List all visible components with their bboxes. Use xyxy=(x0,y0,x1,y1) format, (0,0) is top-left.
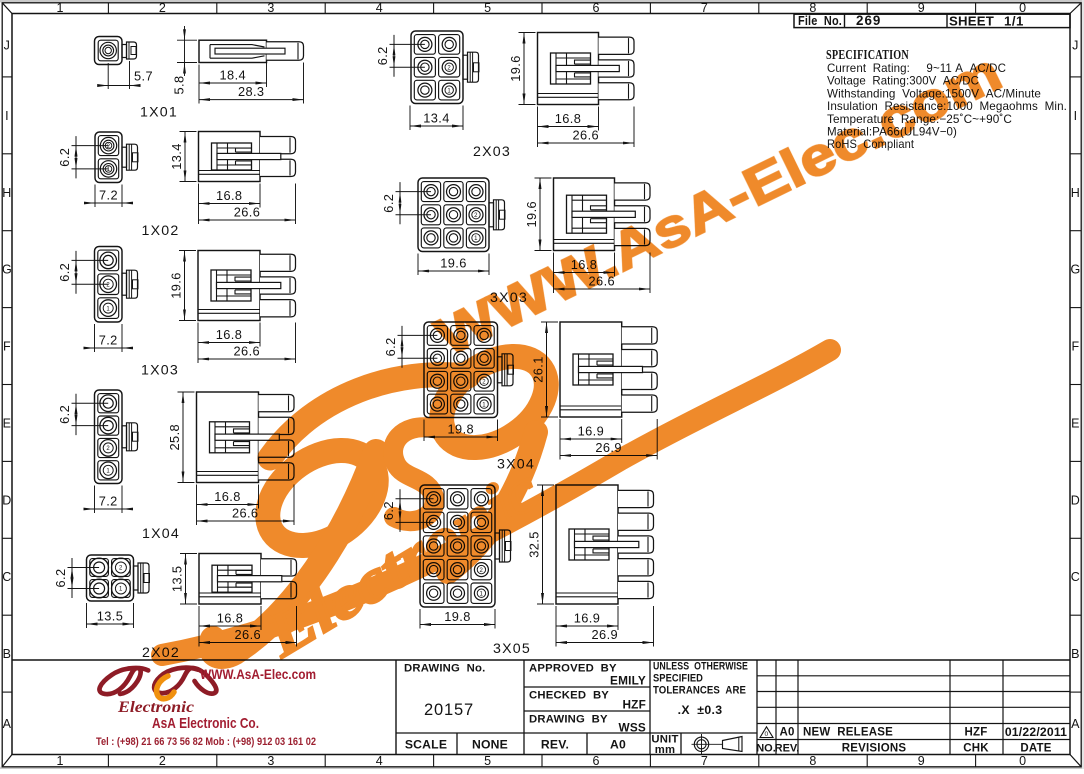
svg-text:SPECIFICATION: SPECIFICATION xyxy=(826,47,909,62)
svg-text:8: 8 xyxy=(809,754,816,768)
svg-text:A0: A0 xyxy=(779,727,794,739)
svg-text:13.5: 13.5 xyxy=(97,609,124,624)
svg-text:269: 269 xyxy=(856,13,881,28)
svg-text:File No.: File No. xyxy=(798,13,842,28)
svg-text:0: 0 xyxy=(764,731,768,738)
svg-text:C: C xyxy=(1071,570,1080,584)
svg-text:Tel : (+98) 21 66 73 56 82 Mob: Tel : (+98) 21 66 73 56 82 Mob : (+98) 9… xyxy=(96,736,316,748)
svg-text:TOLERANCES ARE: TOLERANCES ARE xyxy=(653,685,746,697)
svg-text:6.2: 6.2 xyxy=(381,194,396,213)
svg-text:6.2: 6.2 xyxy=(383,337,398,356)
svg-text:2: 2 xyxy=(159,754,166,768)
svg-text:J: J xyxy=(1072,39,1079,53)
svg-text:G: G xyxy=(1070,263,1080,277)
svg-text:1: 1 xyxy=(474,236,478,242)
svg-text:G: G xyxy=(2,263,12,277)
svg-text:9: 9 xyxy=(918,754,925,768)
svg-text:C: C xyxy=(2,570,11,584)
svg-text:NEW RELEASE: NEW RELEASE xyxy=(803,727,893,739)
svg-text:26.6: 26.6 xyxy=(234,344,261,359)
svg-text:6: 6 xyxy=(593,754,600,768)
svg-text:7: 7 xyxy=(701,754,708,768)
svg-text:1: 1 xyxy=(119,587,123,593)
svg-text:F: F xyxy=(1071,340,1079,354)
svg-text:1X02: 1X02 xyxy=(142,223,180,239)
svg-text:1X01: 1X01 xyxy=(140,105,178,121)
svg-text:19.8: 19.8 xyxy=(444,609,471,624)
svg-text:HZF: HZF xyxy=(965,727,988,739)
svg-text:EMILY: EMILY xyxy=(610,674,646,688)
svg-text:7.2: 7.2 xyxy=(99,188,118,203)
svg-text:2: 2 xyxy=(482,379,486,385)
svg-text:5.7: 5.7 xyxy=(134,69,153,84)
svg-text:7: 7 xyxy=(701,1,708,15)
svg-text:6.2: 6.2 xyxy=(53,569,68,588)
svg-text:A: A xyxy=(3,717,12,731)
svg-text:2: 2 xyxy=(106,282,110,288)
svg-text:E: E xyxy=(3,417,12,431)
svg-text:DATE: DATE xyxy=(1020,743,1051,755)
svg-text:A0: A0 xyxy=(610,738,626,752)
svg-text:25.8: 25.8 xyxy=(167,424,182,451)
svg-text:1: 1 xyxy=(106,469,110,475)
svg-text:H: H xyxy=(2,186,11,200)
svg-text:26.6: 26.6 xyxy=(232,506,259,521)
svg-text:20157: 20157 xyxy=(424,701,474,719)
svg-text:4: 4 xyxy=(376,1,383,15)
svg-text:REVISIONS: REVISIONS xyxy=(842,743,907,755)
svg-text:5.8: 5.8 xyxy=(172,76,187,95)
svg-text:3: 3 xyxy=(267,1,274,15)
svg-text:6.2: 6.2 xyxy=(57,405,72,424)
svg-text:SHEET: SHEET xyxy=(949,13,994,28)
svg-text:13.5: 13.5 xyxy=(170,566,185,593)
svg-text:D: D xyxy=(2,493,11,507)
svg-text:19.6: 19.6 xyxy=(169,272,184,299)
svg-text:E: E xyxy=(1071,417,1080,431)
svg-text:2: 2 xyxy=(159,1,166,15)
svg-text:1: 1 xyxy=(57,1,64,15)
svg-text:0: 0 xyxy=(1019,754,1026,768)
svg-text:2: 2 xyxy=(119,566,123,572)
svg-text:NONE: NONE xyxy=(472,738,508,752)
svg-text:Electronic: Electronic xyxy=(117,698,194,716)
svg-text:I: I xyxy=(5,109,9,123)
svg-text:19.6: 19.6 xyxy=(524,201,539,228)
svg-text:16.8: 16.8 xyxy=(217,611,244,626)
svg-text:28.3: 28.3 xyxy=(238,84,265,99)
svg-text:26.6: 26.6 xyxy=(573,128,600,143)
svg-text:WSS: WSS xyxy=(619,721,646,735)
svg-text:5: 5 xyxy=(484,754,491,768)
svg-text:1: 1 xyxy=(57,754,64,768)
svg-text:HZF: HZF xyxy=(622,698,646,712)
svg-text:F: F xyxy=(3,340,11,354)
svg-text:1: 1 xyxy=(106,306,110,312)
svg-text:1X03: 1X03 xyxy=(141,363,179,379)
svg-text:16.8: 16.8 xyxy=(216,327,243,342)
svg-text:7.2: 7.2 xyxy=(99,494,118,509)
svg-text:1: 1 xyxy=(482,402,486,408)
svg-text:CHK: CHK xyxy=(963,743,989,755)
svg-text:SPECIFIED: SPECIFIED xyxy=(653,673,703,685)
svg-text:16.9: 16.9 xyxy=(578,424,605,439)
svg-text:16.8: 16.8 xyxy=(555,111,582,126)
svg-text:9: 9 xyxy=(918,1,925,15)
svg-text:16.8: 16.8 xyxy=(214,489,241,504)
svg-text:18.4: 18.4 xyxy=(220,68,247,83)
svg-text:2: 2 xyxy=(106,446,110,452)
svg-text:2: 2 xyxy=(480,568,484,574)
svg-text:16.9: 16.9 xyxy=(574,611,601,626)
svg-text:2: 2 xyxy=(107,144,111,150)
svg-text:19.6: 19.6 xyxy=(440,256,467,271)
svg-text:4: 4 xyxy=(376,754,383,768)
svg-text:7.2: 7.2 xyxy=(99,333,118,348)
svg-text:NO.: NO. xyxy=(756,743,776,755)
svg-text:1/1: 1/1 xyxy=(1004,13,1024,28)
svg-text:.X ±0.3: .X ±0.3 xyxy=(678,703,723,717)
svg-text:I: I xyxy=(1074,109,1078,123)
svg-text:32.5: 32.5 xyxy=(527,531,542,558)
svg-text:B: B xyxy=(3,647,12,661)
svg-text:6.2: 6.2 xyxy=(57,263,72,282)
svg-text:APPROVED BY: APPROVED BY xyxy=(529,663,617,675)
svg-text:REV.: REV. xyxy=(541,738,569,752)
svg-text:19.6: 19.6 xyxy=(508,55,523,82)
svg-text:AsA Electronic Co.: AsA Electronic Co. xyxy=(152,716,259,732)
svg-text:6: 6 xyxy=(593,1,600,15)
svg-text:6.2: 6.2 xyxy=(375,46,390,65)
svg-text:UNLESS OTHERWISE: UNLESS OTHERWISE xyxy=(653,661,748,673)
svg-text:mm: mm xyxy=(655,744,676,756)
svg-text:01/22/2011: 01/22/2011 xyxy=(1005,725,1067,739)
svg-text:13.4: 13.4 xyxy=(169,143,184,170)
svg-text:2: 2 xyxy=(474,213,478,219)
svg-text:2: 2 xyxy=(447,66,451,72)
svg-text:DRAWING No.: DRAWING No. xyxy=(404,663,485,675)
svg-text:D: D xyxy=(1071,493,1080,507)
svg-text:5: 5 xyxy=(484,1,491,15)
svg-text:6.2: 6.2 xyxy=(57,148,72,167)
svg-text:1: 1 xyxy=(447,88,451,94)
svg-text:2X03: 2X03 xyxy=(473,144,511,160)
svg-text:16.8: 16.8 xyxy=(216,188,243,203)
svg-text:B: B xyxy=(1071,647,1080,661)
svg-text:3: 3 xyxy=(267,754,274,768)
svg-text:26.6: 26.6 xyxy=(234,205,261,220)
svg-text:13.4: 13.4 xyxy=(423,111,450,126)
svg-text:H: H xyxy=(1071,186,1080,200)
svg-text:1: 1 xyxy=(107,167,111,173)
svg-text:CHECKED BY: CHECKED BY xyxy=(529,690,609,702)
svg-text:J: J xyxy=(4,39,11,53)
svg-text:A: A xyxy=(1071,717,1080,731)
svg-text:26.9: 26.9 xyxy=(592,627,619,642)
svg-text:1: 1 xyxy=(480,591,484,597)
svg-text:DRAWING BY: DRAWING BY xyxy=(529,714,608,726)
svg-text:SCALE: SCALE xyxy=(405,738,447,752)
svg-text:3X05: 3X05 xyxy=(493,641,531,657)
svg-text:REV.: REV. xyxy=(775,743,800,755)
svg-text:WWW.AsA-Elec.com: WWW.AsA-Elec.com xyxy=(200,667,316,683)
svg-text:1X04: 1X04 xyxy=(142,526,180,542)
